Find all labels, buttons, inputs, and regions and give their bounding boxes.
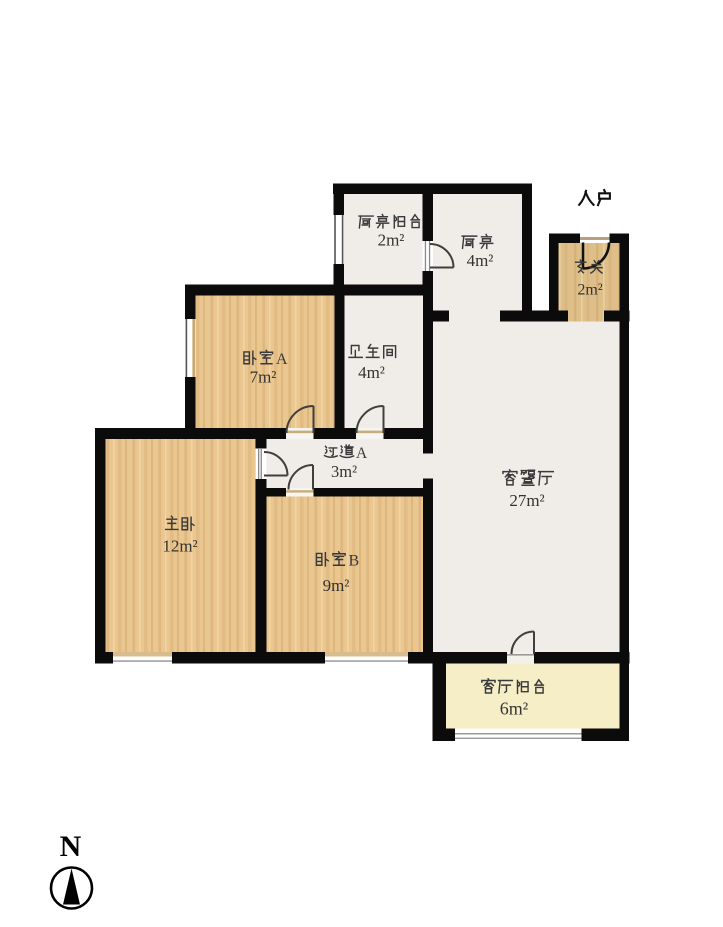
svg-text:6m²: 6m²: [500, 699, 528, 719]
svg-text:N: N: [60, 830, 82, 863]
svg-text:4m²: 4m²: [467, 251, 494, 270]
svg-text:A: A: [276, 351, 288, 368]
svg-text:9m²: 9m²: [323, 576, 350, 595]
svg-text:3m²: 3m²: [331, 462, 357, 481]
svg-text:7m²: 7m²: [250, 368, 277, 387]
svg-text:2m²: 2m²: [378, 231, 405, 250]
svg-text:12m²: 12m²: [162, 537, 197, 556]
svg-text:A: A: [356, 445, 368, 462]
svg-text:4m²: 4m²: [358, 363, 385, 382]
svg-text:B: B: [349, 553, 360, 570]
svg-text:2m²: 2m²: [577, 282, 602, 299]
svg-text:27m²: 27m²: [509, 491, 544, 510]
